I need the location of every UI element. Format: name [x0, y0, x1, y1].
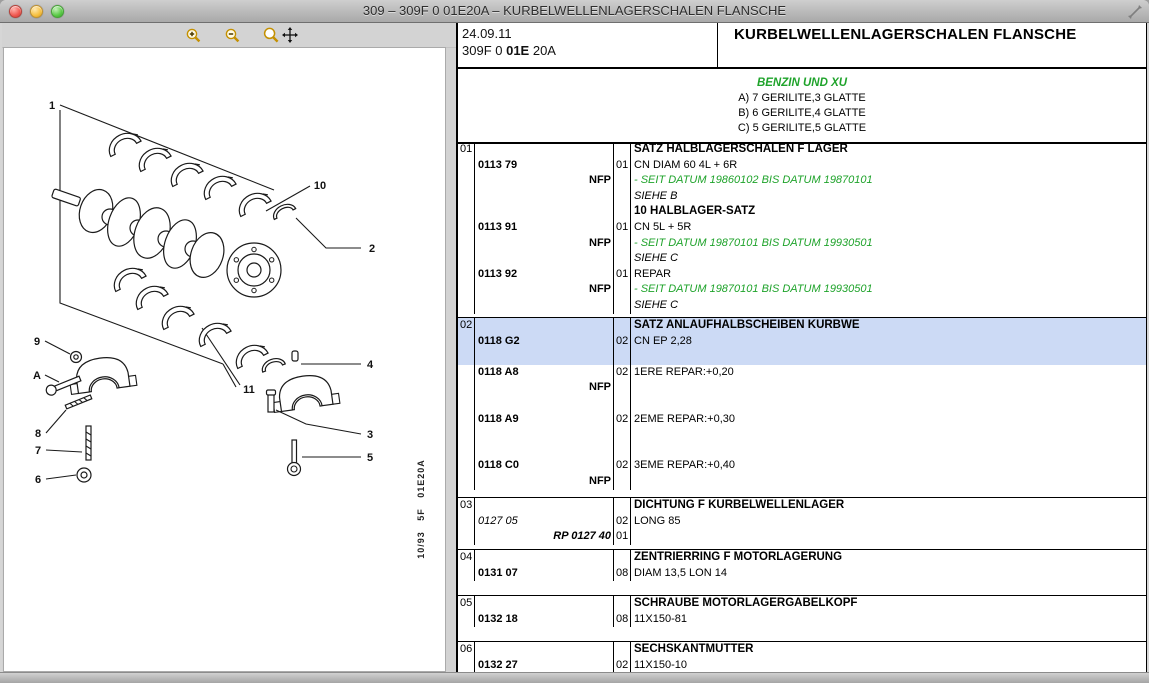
quantity: [614, 443, 631, 459]
parts-block: 02SATZ ANLAUFHALBSCHEIBEN KURBWE0118 G20…: [458, 318, 1146, 498]
callout-label-10: 10: [314, 180, 326, 192]
item-number: 03: [458, 498, 475, 514]
table-row[interactable]: NFP- SEIT DATUM 19860102 BIS DATUM 19870…: [458, 173, 1146, 189]
table-row[interactable]: 04ZENTRIERRING F MOTORLAGERUNG: [458, 550, 1146, 566]
part-description: SCHRAUBE MOTORLAGERGABELKOPF: [631, 596, 1146, 612]
table-row[interactable]: NFP- SEIT DATUM 19870101 BIS DATUM 19930…: [458, 236, 1146, 252]
part-description: [631, 396, 1146, 412]
part-reference: 0131 07: [475, 566, 614, 582]
callout-labels: 11029A87611435: [33, 100, 375, 486]
part-reference: [475, 298, 614, 314]
part-reference: 0118 G2: [475, 334, 614, 350]
item-number: [458, 566, 475, 582]
part-reference: 0127 05: [475, 514, 614, 530]
callout-label-3: 3: [367, 429, 373, 441]
quantity: [614, 349, 631, 365]
engine-note: BENZIN UND XU: [458, 76, 1146, 91]
part-description: 11X150-10: [631, 658, 1146, 672]
callout-label-5: 5: [367, 452, 373, 464]
part-reference: NFP: [475, 236, 614, 252]
table-row[interactable]: [458, 427, 1146, 443]
quantity: [614, 596, 631, 612]
item-number: [458, 189, 475, 205]
quantity: [614, 642, 631, 658]
quantity: [614, 142, 631, 158]
part-description: ZENTRIERRING F MOTORLAGERUNG: [631, 550, 1146, 566]
viewer-toolbar: [2, 23, 456, 48]
part-reference: 0132 27: [475, 658, 614, 672]
part-description: SIEHE B: [631, 189, 1146, 205]
part-description: [631, 474, 1146, 490]
quantity: [614, 251, 631, 267]
part-description: [631, 427, 1146, 443]
item-number: [458, 349, 475, 365]
table-row[interactable]: NFP: [458, 380, 1146, 396]
zoom-pan-button[interactable]: [258, 24, 302, 46]
part-reference: [475, 427, 614, 443]
parts-block: 06SECHSKANTMUTTER0132 270211X150-10NFP: [458, 642, 1146, 672]
part-description: SATZ HALBLAGERSCHALEN F LAGER: [631, 142, 1146, 158]
table-row[interactable]: 0132 270211X150-10: [458, 658, 1146, 672]
right-bearing-cap: [270, 372, 340, 413]
parts-block: 04ZENTRIERRING F MOTORLAGERUNG0131 0708D…: [458, 550, 1146, 596]
quantity: [614, 380, 631, 396]
callout-label-1: 1: [49, 100, 55, 112]
part-reference: 0113 79: [475, 158, 614, 174]
part-description: 3EME REPAR:+0,40: [631, 458, 1146, 474]
zoom-out-button[interactable]: [219, 24, 245, 46]
figure-code: 309F 0 01E 20A: [462, 42, 713, 60]
part-description: [631, 443, 1146, 459]
quantity: [614, 204, 631, 220]
table-row[interactable]: 0132 180811X150-81: [458, 612, 1146, 628]
quantity: [614, 173, 631, 189]
item-number: [458, 236, 475, 252]
callout-lines: [45, 105, 361, 479]
title-bar[interactable]: 309 – 309F 0 01E20A – KURBELWELLENLAGERS…: [0, 0, 1149, 23]
window-title: 309 – 309F 0 01E20A – KURBELWELLENLAGERS…: [0, 3, 1149, 18]
quantity: [614, 282, 631, 298]
note-line: B) 6 GERILITE,4 GLATTE: [458, 106, 1146, 121]
table-row[interactable]: 0118 A9022EME REPAR:+0,30: [458, 412, 1146, 428]
callout-label-7: 7: [35, 445, 41, 457]
quantity: [614, 396, 631, 412]
part-reference: [475, 349, 614, 365]
part-reference: [475, 189, 614, 205]
part-description: CN EP 2,28: [631, 334, 1146, 350]
catalog-date: 24.09.11: [462, 25, 713, 42]
quantity: 01: [614, 220, 631, 236]
part-reference: [475, 443, 614, 459]
table-row[interactable]: 01SATZ HALBLAGERSCHALEN F LAGER: [458, 142, 1146, 158]
item-number: [458, 282, 475, 298]
part-description: - SEIT DATUM 19860102 BIS DATUM 19870101: [631, 173, 1146, 189]
table-row[interactable]: NFP- SEIT DATUM 19870101 BIS DATUM 19930…: [458, 282, 1146, 298]
table-row[interactable]: RP 0127 4001: [458, 529, 1146, 545]
part-reference: [475, 642, 614, 658]
parts-block: 01SATZ HALBLAGERSCHALEN F LAGER0113 7901…: [458, 142, 1146, 318]
parts-list-panel: 24.09.11 309F 0 01E 20A KURBELWELLENLAGE…: [456, 23, 1147, 672]
item-number: [458, 267, 475, 283]
item-number: [458, 158, 475, 174]
quantity: [614, 318, 631, 334]
part-description: - SEIT DATUM 19870101 BIS DATUM 19930501: [631, 236, 1146, 252]
quantity: [614, 189, 631, 205]
item-number: [458, 173, 475, 189]
part-description: REPAR: [631, 267, 1146, 283]
resize-icon[interactable]: [1127, 4, 1143, 20]
item-number: 01: [458, 142, 475, 158]
part-description: DIAM 13,5 LON 14: [631, 566, 1146, 582]
table-row[interactable]: 0113 9101CN 5L + 5R: [458, 220, 1146, 236]
part-reference: [475, 596, 614, 612]
table-row[interactable]: 02SATZ ANLAUFHALBSCHEIBEN KURBWE: [458, 318, 1146, 334]
part-description: LONG 85: [631, 514, 1146, 530]
part-description: SECHSKANTMUTTER: [631, 642, 1146, 658]
part-description: CN DIAM 60 4L + 6R: [631, 158, 1146, 174]
part-description: SATZ ANLAUFHALBSCHEIBEN KURBWE: [631, 318, 1146, 334]
drawing-viewer-panel: 11029A87611435 10/93 5F 01E20A: [2, 23, 456, 672]
quantity: 01: [614, 158, 631, 174]
part-reference: 0118 C0: [475, 458, 614, 474]
part-description: SIEHE C: [631, 298, 1146, 314]
part-reference: 0113 92: [475, 267, 614, 283]
table-row[interactable]: 05SCHRAUBE MOTORLAGERGABELKOPF: [458, 596, 1146, 612]
quantity: 02: [614, 365, 631, 381]
part-reference: 0118 A8: [475, 365, 614, 381]
item-number: [458, 412, 475, 428]
item-number: [458, 514, 475, 530]
callout-label-11: 11: [243, 384, 255, 396]
quantity: [614, 298, 631, 314]
exploded-drawing-canvas[interactable]: 11029A87611435 10/93 5F 01E20A: [3, 47, 446, 672]
item-number: [458, 474, 475, 490]
quantity: 01: [614, 267, 631, 283]
item-number: [458, 204, 475, 220]
quantity: 08: [614, 566, 631, 582]
figure-title: KURBELWELLENLAGERSCHALEN FLANSCHE: [718, 23, 1146, 67]
part-reference: [475, 142, 614, 158]
note-line: C) 5 GERILITE,5 GLATTE: [458, 121, 1146, 136]
part-reference: [475, 498, 614, 514]
table-row[interactable]: 0118 G202CN EP 2,28: [458, 334, 1146, 350]
quantity: [614, 498, 631, 514]
item-number: 04: [458, 550, 475, 566]
callout-label-4: 4: [367, 359, 374, 371]
callout-label-A: A: [33, 370, 41, 382]
part-description: [631, 349, 1146, 365]
quantity: 08: [614, 612, 631, 628]
quantity: 02: [614, 514, 631, 530]
note-lines: A) 7 GERILITE,3 GLATTEB) 6 GERILITE,4 GL…: [458, 91, 1146, 137]
part-reference: 0118 A9: [475, 412, 614, 428]
part-description: 1ERE REPAR:+0,20: [631, 365, 1146, 381]
table-row[interactable]: SIEHE C: [458, 251, 1146, 267]
part-reference: [475, 396, 614, 412]
table-row[interactable]: 0113 9201REPAR: [458, 267, 1146, 283]
part-reference: [475, 318, 614, 334]
pan-arrows-icon: [282, 27, 298, 43]
quantity: [614, 550, 631, 566]
table-row[interactable]: 0118 C0023EME REPAR:+0,40: [458, 458, 1146, 474]
callout-label-8: 8: [35, 428, 41, 440]
drawing-plate-code: 10/93 5F 01E20A: [416, 443, 428, 575]
table-row[interactable]: SIEHE C: [458, 298, 1146, 314]
part-description: - SEIT DATUM 19870101 BIS DATUM 19930501: [631, 282, 1146, 298]
item-number: [458, 251, 475, 267]
part-description: SIEHE C: [631, 251, 1146, 267]
part-description: [631, 380, 1146, 396]
callout-label-9: 9: [34, 336, 40, 348]
item-number: 02: [458, 318, 475, 334]
item-number: [458, 427, 475, 443]
item-number: [458, 458, 475, 474]
part-reference: 0113 91: [475, 220, 614, 236]
part-reference: [475, 550, 614, 566]
quantity: [614, 427, 631, 443]
item-number: [458, 529, 475, 545]
item-number: 05: [458, 596, 475, 612]
part-description: 10 HALBLAGER-SATZ: [631, 204, 1146, 220]
quantity: 02: [614, 658, 631, 672]
quantity: [614, 474, 631, 490]
item-number: [458, 365, 475, 381]
part-description: CN 5L + 5R: [631, 220, 1146, 236]
window-bottom-edge: [0, 672, 1149, 683]
parts-block: 03DICHTUNG F KURBELWELLENLAGER0127 0502L…: [458, 498, 1146, 550]
magnifier-icon: [263, 27, 280, 43]
part-description: 2EME REPAR:+0,30: [631, 412, 1146, 428]
quantity: 01: [614, 529, 631, 545]
parts-block: 05SCHRAUBE MOTORLAGERGABELKOPF0132 18081…: [458, 596, 1146, 642]
table-row[interactable]: [458, 349, 1146, 365]
part-reference: NFP: [475, 380, 614, 396]
quantity: 02: [614, 334, 631, 350]
part-reference: NFP: [475, 173, 614, 189]
part-reference: RP 0127 40: [475, 529, 614, 545]
table-row[interactable]: 0118 A8021ERE REPAR:+0,20: [458, 365, 1146, 381]
crankshaft-exploded-diagram: 11029A87611435: [4, 48, 445, 670]
parts-header: 24.09.11 309F 0 01E 20A KURBELWELLENLAGE…: [458, 23, 1146, 69]
part-reference: [475, 251, 614, 267]
item-number: [458, 298, 475, 314]
item-number: [458, 396, 475, 412]
app-window: 309 – 309F 0 01E20A – KURBELWELLENLAGERS…: [0, 0, 1149, 683]
quantity: 02: [614, 412, 631, 428]
part-reference: 0132 18: [475, 612, 614, 628]
item-number: [458, 612, 475, 628]
item-number: [458, 443, 475, 459]
item-number: 06: [458, 642, 475, 658]
part-reference: NFP: [475, 282, 614, 298]
table-row[interactable]: 0127 0502LONG 85: [458, 514, 1146, 530]
table-row[interactable]: 0131 0708DIAM 13,5 LON 14: [458, 566, 1146, 582]
part-description: 11X150-81: [631, 612, 1146, 628]
callout-label-6: 6: [35, 474, 41, 486]
part-description: DICHTUNG F KURBELWELLENLAGER: [631, 498, 1146, 514]
quantity: [614, 236, 631, 252]
note-line: A) 7 GERILITE,3 GLATTE: [458, 91, 1146, 106]
table-row[interactable]: NFP: [458, 474, 1146, 490]
item-number: [458, 658, 475, 672]
part-reference: [475, 204, 614, 220]
table-row[interactable]: [458, 443, 1146, 459]
engine-note-box: BENZIN UND XU A) 7 GERILITE,3 GLATTEB) 6…: [458, 69, 1146, 144]
part-description: [631, 529, 1146, 545]
part-reference: NFP: [475, 474, 614, 490]
table-row[interactable]: 10 HALBLAGER-SATZ: [458, 204, 1146, 220]
table-row[interactable]: [458, 396, 1146, 412]
callout-label-2: 2: [369, 243, 375, 255]
table-row[interactable]: SIEHE B: [458, 189, 1146, 205]
item-number: [458, 380, 475, 396]
table-row[interactable]: 03DICHTUNG F KURBELWELLENLAGER: [458, 498, 1146, 514]
item-number: [458, 334, 475, 350]
quantity: 02: [614, 458, 631, 474]
table-row[interactable]: 0113 7901CN DIAM 60 4L + 6R: [458, 158, 1146, 174]
parts-table: 01SATZ HALBLAGERSCHALEN F LAGER0113 7901…: [458, 142, 1146, 672]
table-row[interactable]: 06SECHSKANTMUTTER: [458, 642, 1146, 658]
zoom-in-button[interactable]: [180, 24, 206, 46]
item-number: [458, 220, 475, 236]
